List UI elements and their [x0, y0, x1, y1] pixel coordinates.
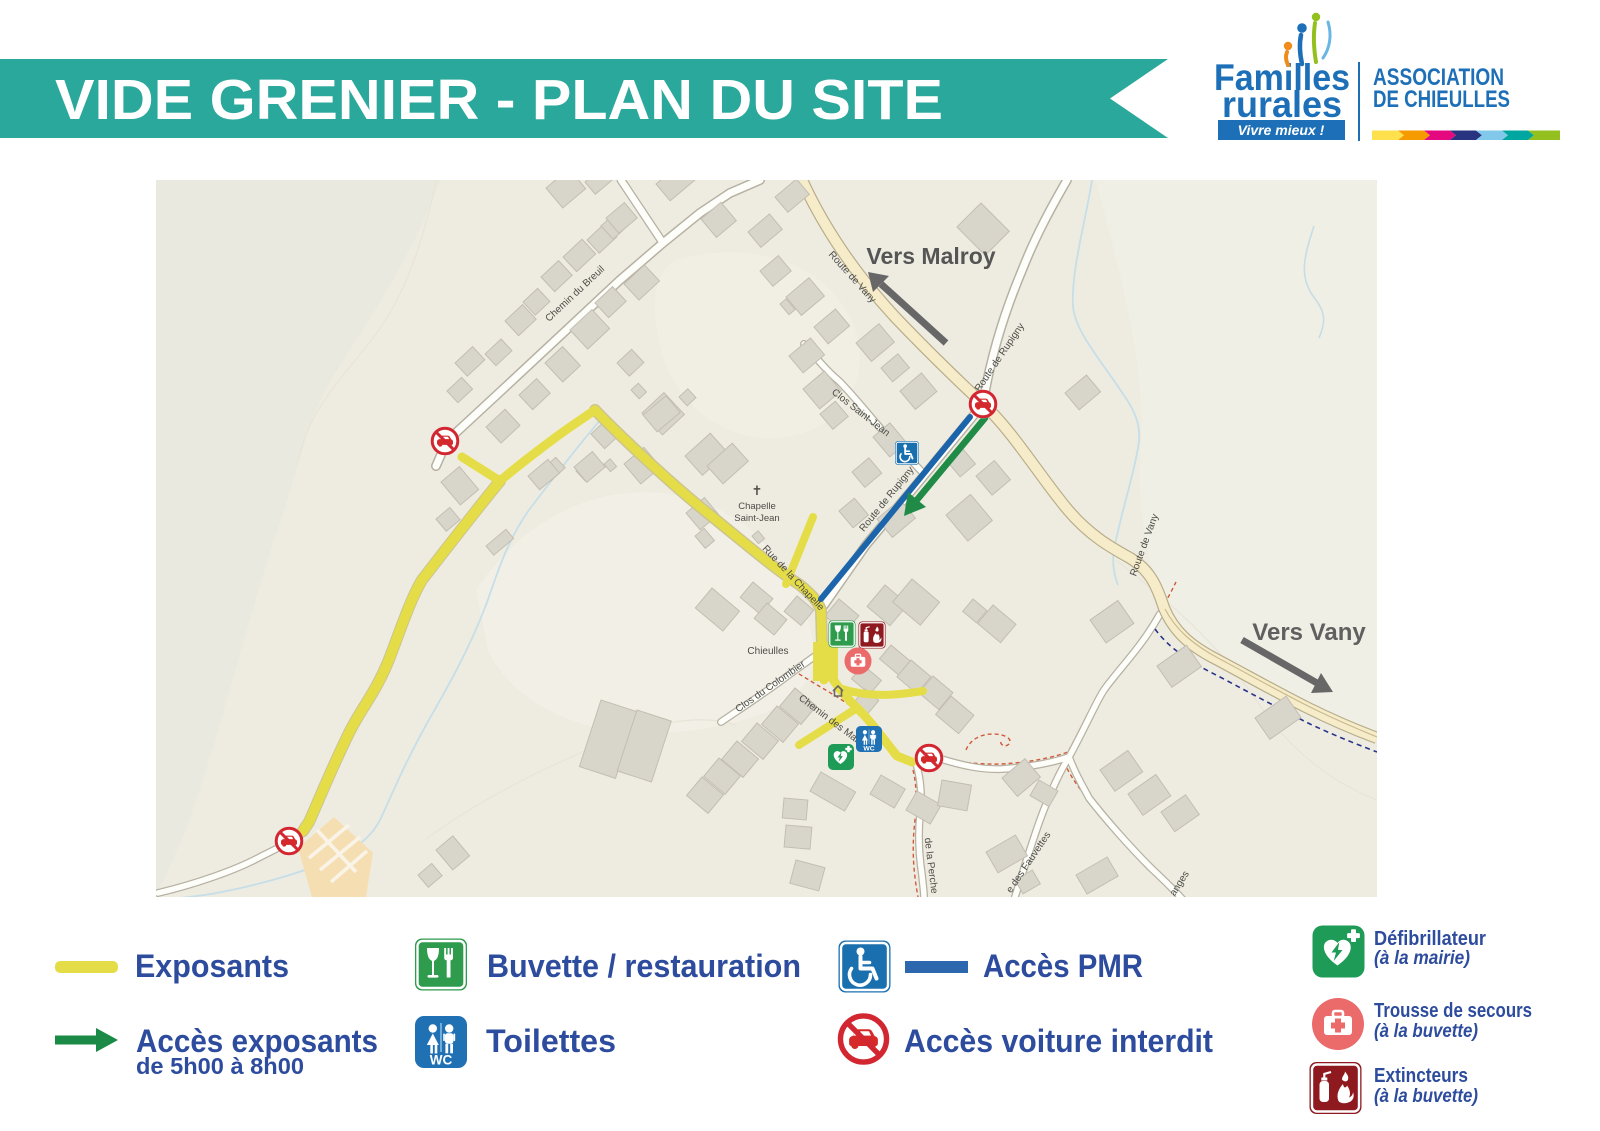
- svg-text:Vivre mieux !: Vivre mieux !: [1238, 122, 1325, 138]
- svg-text:de 5h00 à 8h00: de 5h00 à 8h00: [136, 1053, 304, 1079]
- svg-text:Trousse de secours: Trousse de secours: [1374, 1000, 1532, 1022]
- svg-text:Saint-Jean: Saint-Jean: [734, 513, 779, 524]
- svg-text:Extincteurs: Extincteurs: [1374, 1065, 1468, 1087]
- svg-text:Vers Malroy: Vers Malroy: [866, 243, 995, 269]
- svg-text:Chapelle: Chapelle: [738, 501, 776, 512]
- svg-text:(à la buvette): (à la buvette): [1374, 1021, 1478, 1042]
- svg-text:VIDE GRENIER - PLAN DU SITE: VIDE GRENIER - PLAN DU SITE: [55, 68, 943, 132]
- svg-text:Exposants: Exposants: [135, 948, 289, 984]
- svg-text:✝: ✝: [752, 483, 763, 498]
- svg-text:Buvette / restauration: Buvette / restauration: [487, 948, 801, 984]
- svg-text:(à la mairie): (à la mairie): [1374, 948, 1470, 969]
- svg-text:Accès voiture interdit: Accès voiture interdit: [904, 1023, 1213, 1059]
- svg-text:(à la buvette): (à la buvette): [1374, 1086, 1478, 1107]
- svg-text:Toilettes: Toilettes: [486, 1023, 616, 1059]
- svg-text:Chieulles: Chieulles: [747, 646, 788, 657]
- svg-text:DE CHIEULLES: DE CHIEULLES: [1373, 86, 1510, 113]
- svg-text:Vers Vany: Vers Vany: [1252, 619, 1366, 646]
- svg-text:Défibrillateur: Défibrillateur: [1374, 928, 1486, 950]
- svg-text:rurales: rurales: [1222, 84, 1342, 125]
- svg-text:Accès PMR: Accès PMR: [983, 948, 1143, 984]
